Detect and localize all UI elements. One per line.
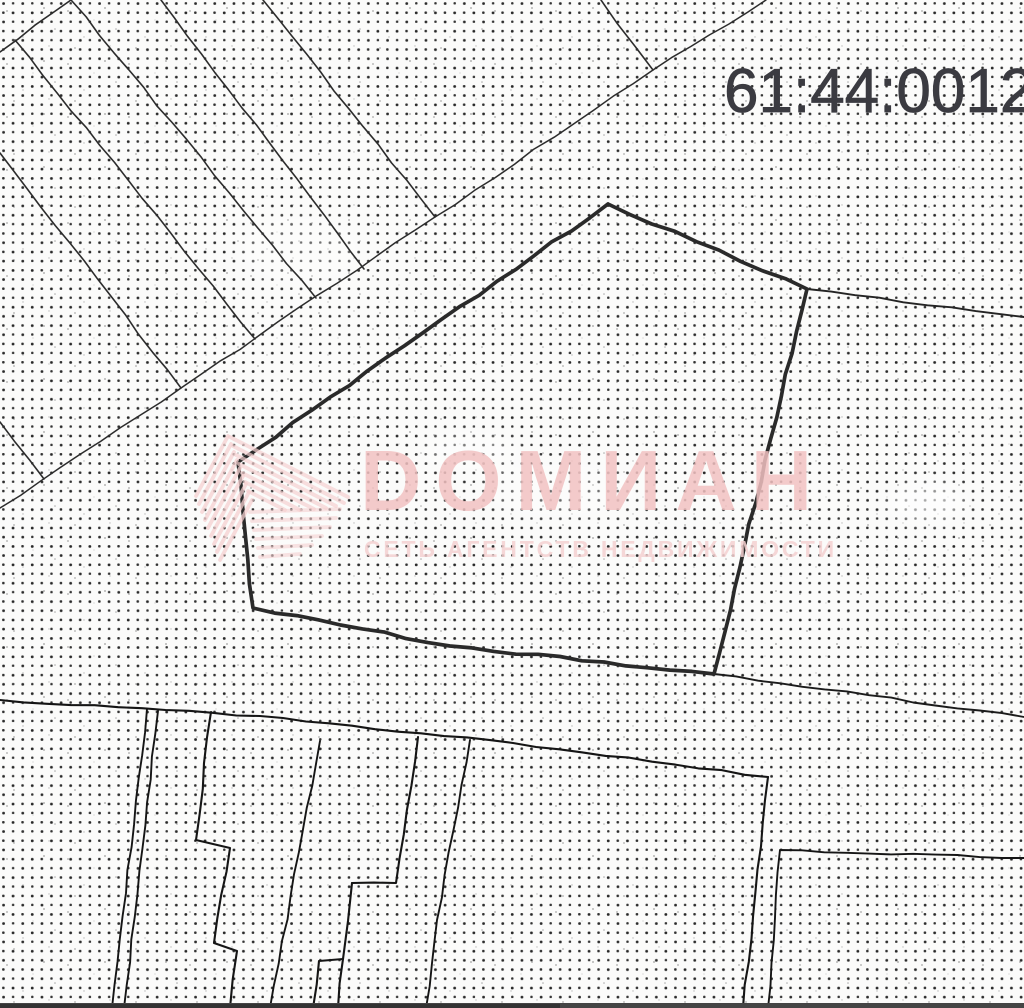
svg-text:СЕТЬ АГЕНТСТВ НЕДВИЖИМОСТИ: СЕТЬ АГЕНТСТВ НЕДВИЖИМОСТИ: [364, 536, 837, 562]
svg-text:61:44:0012: 61:44:0012: [724, 57, 1024, 126]
svg-text:DОМИАН: DОМИАН: [360, 434, 826, 529]
